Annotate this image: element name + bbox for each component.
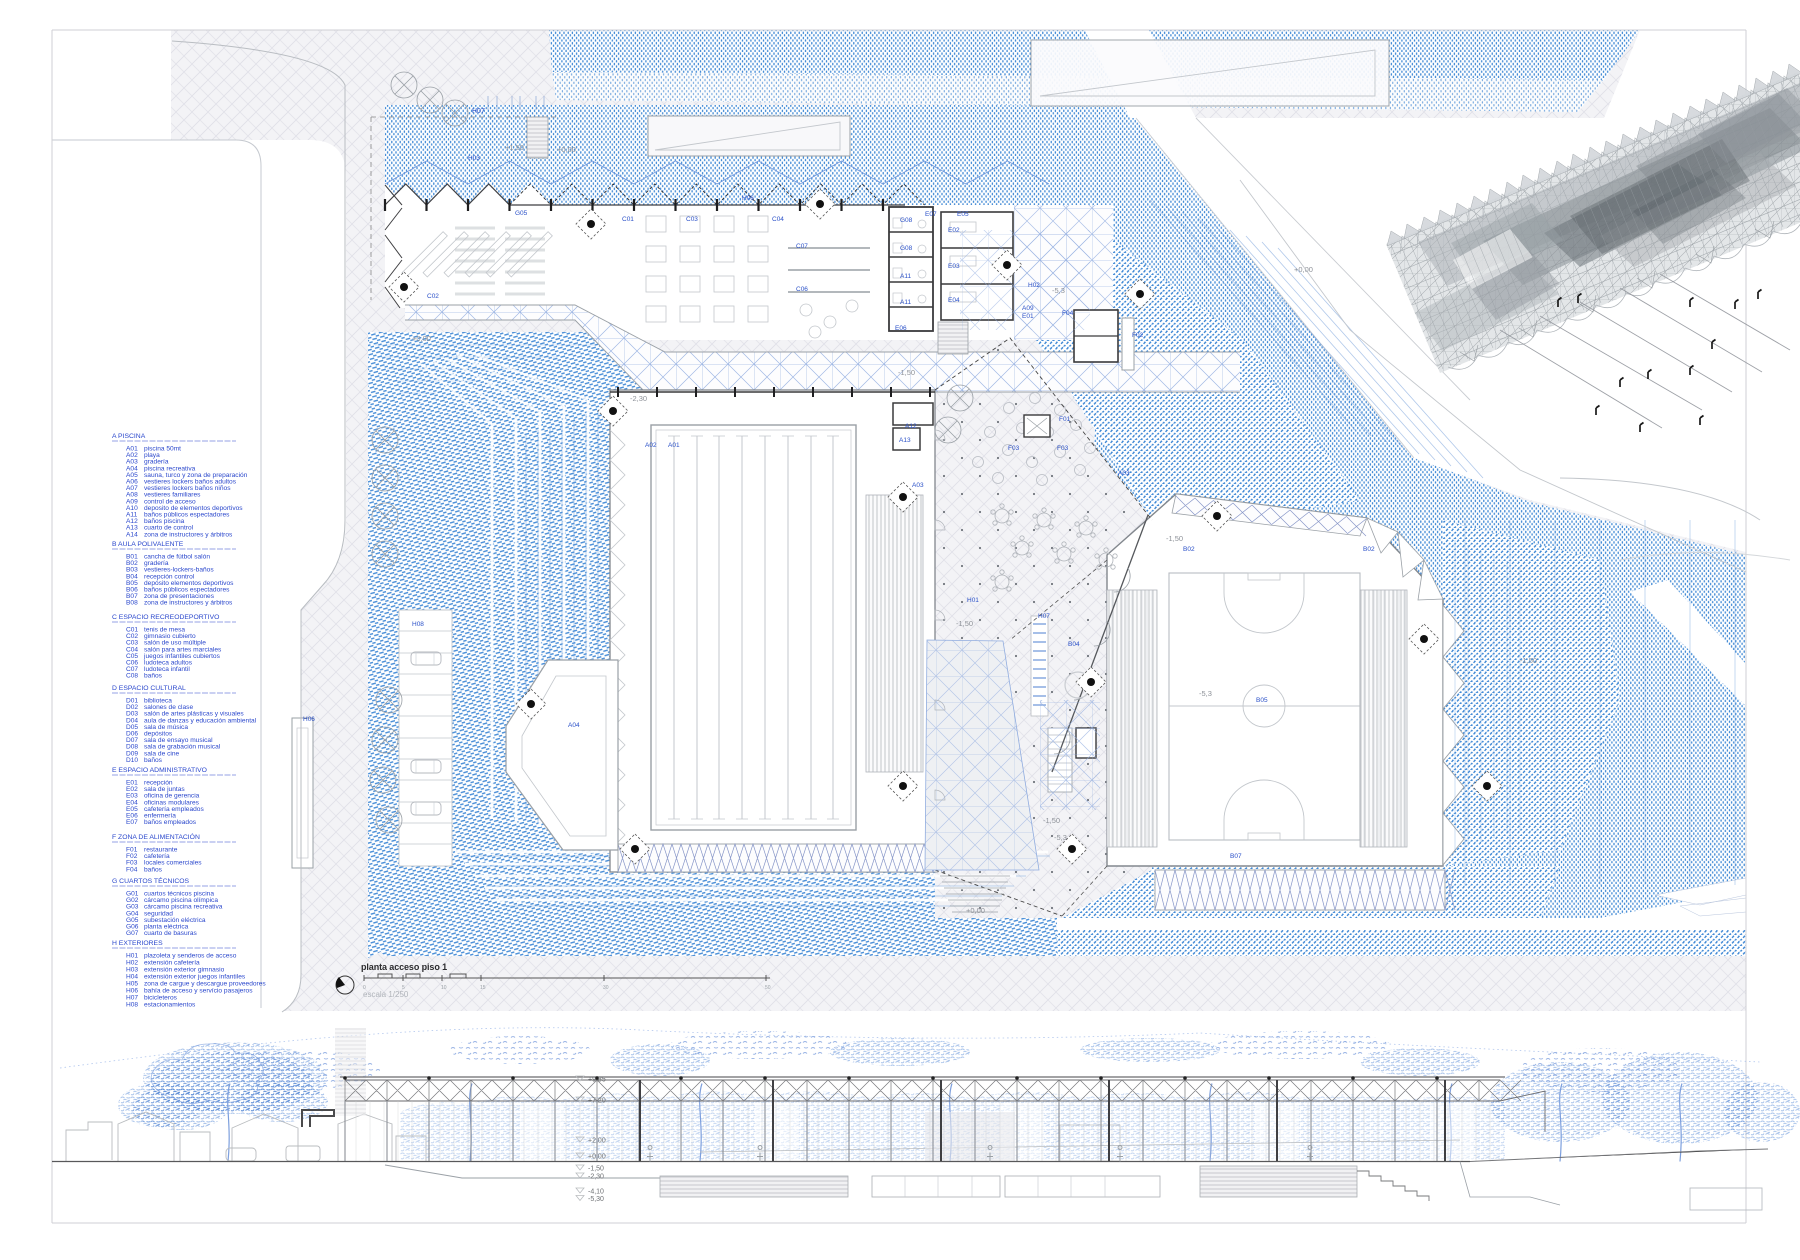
svg-text:A13: A13 — [899, 437, 911, 444]
svg-text:-1,50: -1,50 — [1166, 534, 1183, 543]
svg-text:F03: F03 — [1008, 445, 1020, 452]
svg-text:H06: H06 — [303, 716, 315, 723]
svg-text:E07: E07 — [925, 211, 937, 218]
svg-text:C01: C01 — [622, 216, 634, 223]
svg-text:-1,50: -1,50 — [898, 368, 915, 377]
svg-text:A PISCINA: A PISCINA — [112, 433, 146, 440]
svg-text:B02: B02 — [1183, 546, 1195, 553]
svg-text:extensión exterior juegos infa: extensión exterior juegos infantiles — [144, 974, 246, 981]
svg-text:F03: F03 — [1057, 445, 1069, 452]
svg-text:E01: E01 — [1022, 313, 1034, 320]
svg-text:zona de instructores y árbitro: zona de instructores y árbitros — [144, 531, 233, 538]
svg-text:10: 10 — [441, 985, 447, 991]
svg-text:F04: F04 — [126, 866, 138, 873]
svg-text:F01: F01 — [1059, 416, 1071, 423]
svg-text:B08: B08 — [126, 600, 138, 607]
svg-text:C08: C08 — [126, 673, 138, 680]
svg-text:F04: F04 — [1062, 310, 1074, 317]
svg-text:-1,50: -1,50 — [956, 619, 973, 628]
svg-text:+1,50: +1,50 — [505, 143, 524, 152]
svg-text:-1,50: -1,50 — [1520, 656, 1537, 665]
svg-text:-5,30: -5,30 — [588, 1196, 604, 1203]
svg-text:E07: E07 — [126, 819, 138, 826]
svg-text:+0,00: +0,00 — [588, 1154, 606, 1161]
svg-text:A09: A09 — [1022, 305, 1034, 312]
svg-text:B02: B02 — [1363, 546, 1375, 553]
svg-text:+0,00: +0,00 — [966, 906, 985, 915]
svg-text:+2,00: +2,00 — [588, 1138, 606, 1145]
svg-text:H08: H08 — [126, 1002, 138, 1009]
svg-text:F02: F02 — [1132, 332, 1144, 339]
svg-text:B04: B04 — [1068, 641, 1080, 648]
svg-text:extensión cafetería: extensión cafetería — [144, 960, 200, 967]
svg-text:H01: H01 — [967, 597, 979, 604]
svg-text:A14: A14 — [126, 531, 138, 538]
svg-text:H01: H01 — [126, 953, 138, 960]
svg-text:50: 50 — [765, 985, 771, 991]
svg-text:H07: H07 — [472, 108, 485, 115]
svg-text:F ZONA DE ALIMENTACIÓN: F ZONA DE ALIMENTACIÓN — [112, 832, 200, 841]
svg-text:H07: H07 — [126, 995, 138, 1002]
svg-text:E ESPACIO ADMINISTRATIVO: E ESPACIO ADMINISTRATIVO — [112, 767, 207, 774]
svg-text:C07: C07 — [796, 243, 808, 250]
svg-text:E05: E05 — [957, 211, 969, 218]
svg-text:B05: B05 — [1256, 697, 1268, 704]
svg-text:H03: H03 — [126, 967, 138, 974]
svg-text:A02: A02 — [645, 442, 657, 449]
svg-text:G07: G07 — [126, 930, 139, 937]
svg-text:extensión exterior gimnasio: extensión exterior gimnasio — [144, 967, 225, 974]
svg-text:15: 15 — [480, 985, 486, 991]
svg-text:-1,50: -1,50 — [1043, 816, 1060, 825]
svg-text:H07: H07 — [1038, 613, 1050, 620]
svg-text:H04: H04 — [126, 974, 138, 981]
svg-text:-5,3: -5,3 — [1199, 689, 1212, 698]
svg-text:C06: C06 — [796, 286, 808, 293]
svg-text:A11: A11 — [900, 273, 911, 280]
svg-text:H06: H06 — [126, 988, 138, 995]
svg-text:-4,10: -4,10 — [588, 1189, 604, 1196]
svg-text:A01: A01 — [668, 442, 680, 449]
svg-text:baños: baños — [144, 866, 163, 873]
svg-text:H02: H02 — [126, 960, 138, 967]
svg-text:E04: E04 — [948, 297, 960, 304]
svg-text:-2,30: -2,30 — [588, 1174, 604, 1181]
svg-text:baños empleados: baños empleados — [144, 819, 197, 826]
svg-text:baños: baños — [144, 673, 163, 680]
svg-text:+0,00: +0,00 — [412, 334, 431, 343]
svg-text:A03: A03 — [912, 482, 924, 489]
svg-text:bicicleteros: bicicleteros — [144, 995, 178, 1002]
svg-text:G CUARTOS TÉCNICOS: G CUARTOS TÉCNICOS — [112, 876, 190, 885]
svg-text:-5,3: -5,3 — [1052, 286, 1065, 295]
svg-text:estacionamientos: estacionamientos — [144, 1002, 196, 1009]
svg-text:E06: E06 — [895, 325, 907, 332]
svg-text:H08: H08 — [412, 621, 424, 628]
svg-text:planta acceso piso 1: planta acceso piso 1 — [361, 962, 447, 972]
svg-text:C02: C02 — [427, 293, 439, 300]
svg-text:30: 30 — [603, 985, 609, 991]
svg-text:+7,20: +7,20 — [588, 1098, 606, 1105]
svg-text:bahía de acceso y servício pas: bahía de acceso y servício pasajeros — [144, 988, 253, 995]
svg-text:H06: H06 — [742, 195, 754, 202]
svg-text:B AULA POLIVALENTE: B AULA POLIVALENTE — [112, 541, 184, 548]
svg-text:H05: H05 — [126, 981, 138, 988]
svg-text:A03: A03 — [1118, 470, 1130, 477]
svg-text:H02: H02 — [1028, 282, 1040, 289]
svg-text:D10: D10 — [126, 757, 138, 764]
svg-text:A04: A04 — [568, 722, 580, 729]
svg-text:-2,30: -2,30 — [630, 394, 647, 403]
svg-text:plazoleta y senderos de acceso: plazoleta y senderos de acceso — [144, 953, 237, 960]
svg-text:G05: G05 — [515, 210, 528, 217]
svg-text:zona de instructores y árbitro: zona de instructores y árbitros — [144, 600, 233, 607]
svg-text:C03: C03 — [686, 216, 698, 223]
svg-text:H03: H03 — [468, 155, 480, 162]
svg-text:+9,85: +9,85 — [588, 1077, 606, 1084]
svg-text:E02: E02 — [948, 227, 960, 234]
svg-text:-1,50: -1,50 — [588, 1166, 604, 1173]
svg-text:zona de cargue y descargue pro: zona de cargue y descargue proveedores — [144, 981, 266, 988]
svg-text:A12: A12 — [905, 423, 917, 430]
svg-text:A11: A11 — [900, 299, 911, 306]
svg-text:baños: baños — [144, 757, 163, 764]
svg-text:B07: B07 — [1230, 853, 1242, 860]
svg-text:escala 1/250: escala 1/250 — [363, 990, 409, 999]
svg-text:cuarto de basuras: cuarto de basuras — [144, 930, 197, 937]
svg-text:D ESPACIO CULTURAL: D ESPACIO CULTURAL — [112, 685, 186, 692]
svg-text:E03: E03 — [948, 263, 960, 270]
svg-text:+0,00: +0,00 — [557, 145, 576, 154]
svg-text:C04: C04 — [772, 216, 784, 223]
svg-text:G08: G08 — [900, 217, 913, 224]
svg-text:H EXTERIORES: H EXTERIORES — [112, 940, 163, 947]
svg-text:-5,3: -5,3 — [1054, 833, 1067, 842]
svg-text:C ESPACIO RECREODEPORTIVO: C ESPACIO RECREODEPORTIVO — [112, 614, 219, 621]
svg-text:G08: G08 — [900, 245, 913, 252]
